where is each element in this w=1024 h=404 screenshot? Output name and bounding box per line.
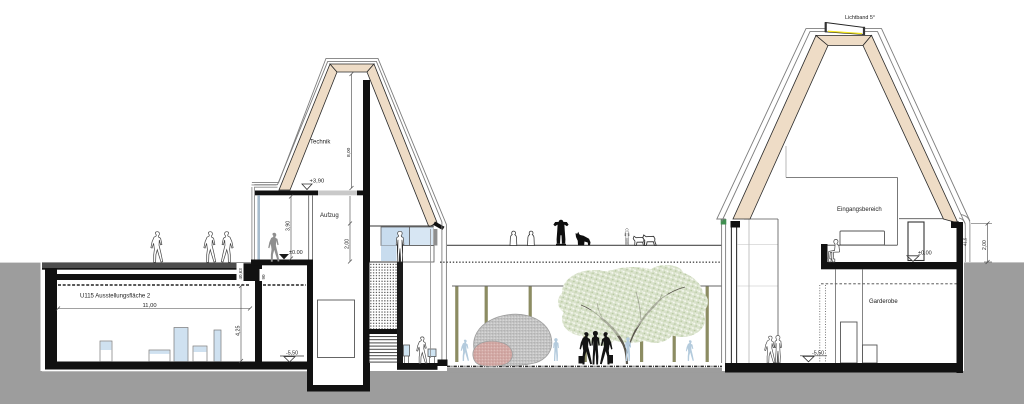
- svg-text:40,63: 40,63: [238, 268, 243, 280]
- svg-text:Garderobe: Garderobe: [869, 299, 898, 305]
- svg-text:11,00: 11,00: [143, 303, 157, 309]
- svg-text:±0.00: ±0.00: [918, 251, 932, 257]
- svg-text:Aufzug: Aufzug: [320, 213, 339, 219]
- svg-text:±0.00: ±0.00: [289, 250, 303, 256]
- svg-text:Lichtband 5°: Lichtband 5°: [845, 15, 875, 21]
- svg-text:2,00: 2,00: [982, 240, 988, 250]
- svg-text:4,25: 4,25: [236, 326, 242, 337]
- svg-text:Technik: Technik: [310, 140, 331, 146]
- svg-text:Eingangsbereich: Eingangsbereich: [837, 207, 882, 213]
- svg-text:3,90: 3,90: [286, 221, 292, 231]
- svg-text:U115 Ausstellungsfläche 2: U115 Ausstellungsfläche 2: [80, 294, 151, 300]
- svg-text:8,00: 8,00: [346, 147, 352, 157]
- svg-text:90: 90: [261, 274, 266, 280]
- svg-text:41,5: 41,5: [963, 237, 968, 246]
- svg-text:-5,50: -5,50: [286, 351, 298, 357]
- svg-text:2,00: 2,00: [345, 239, 351, 249]
